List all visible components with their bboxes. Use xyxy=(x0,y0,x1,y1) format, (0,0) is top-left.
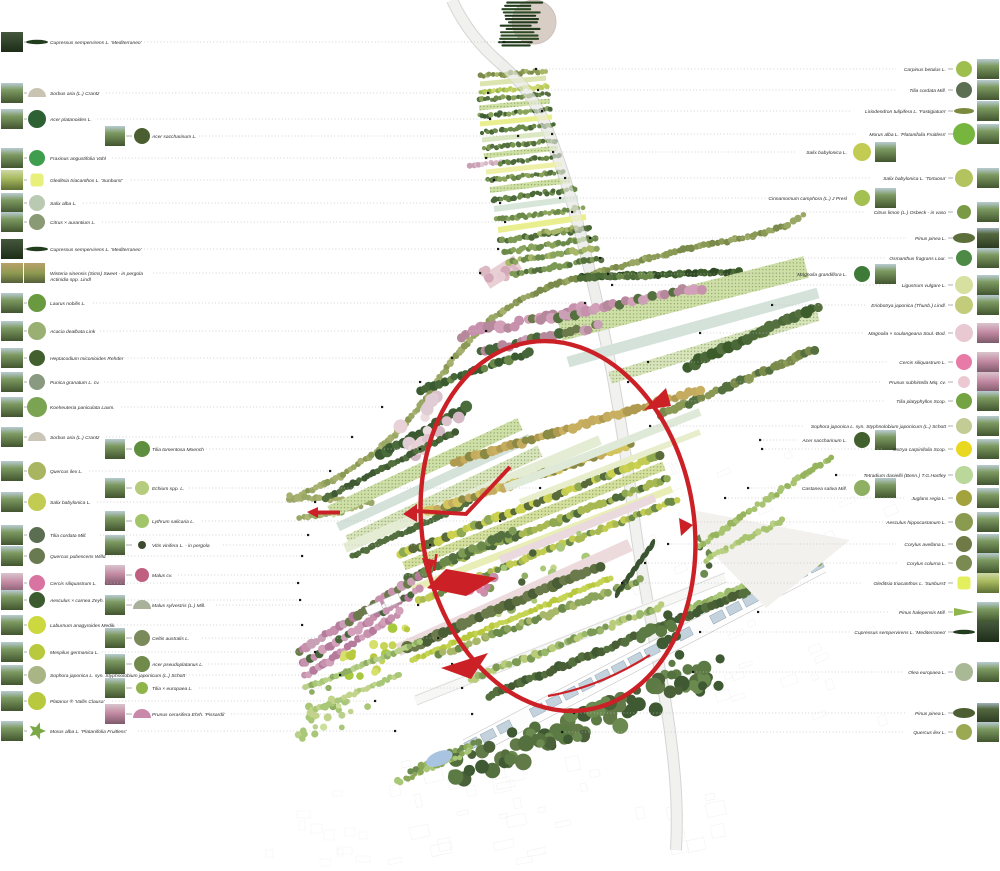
svg-text:Celtis australis L.: Celtis australis L. xyxy=(152,636,189,642)
svg-text:Pinus pinea L.: Pinus pinea L. xyxy=(915,236,946,242)
svg-text:Tilia cordata Mill.: Tilia cordata Mill. xyxy=(909,88,946,94)
svg-text:Mespilus germanica L.: Mespilus germanica L. xyxy=(50,650,99,656)
svg-text:Tetradium daniellii (Benn.) T: Tetradium daniellii (Benn.) T.G.Hartley xyxy=(863,473,946,479)
svg-text:Acer platanoides L.: Acer platanoides L. xyxy=(49,117,92,123)
svg-text:Echium spp. L.: Echium spp. L. xyxy=(152,486,184,492)
svg-text:Morus alba L. 'Platanifolia F: Morus alba L. 'Platanifolia Fruitless' xyxy=(50,729,128,735)
svg-text:Olea europaea L.: Olea europaea L. xyxy=(908,670,946,676)
svg-text:Salix alba L.: Salix alba L. xyxy=(50,201,77,207)
svg-text:Quercus ilex L.: Quercus ilex L. xyxy=(913,730,946,736)
svg-text:Lythrum salicaria L.: Lythrum salicaria L. xyxy=(152,519,194,525)
svg-text:Salix babylonica L. 'Tortuo: Salix babylonica L. 'Tortuosa' xyxy=(883,176,947,182)
svg-text:Malus cv.: Malus cv. xyxy=(152,573,172,579)
svg-text:Actinidia spp. Lindl: Actinidia spp. Lindl xyxy=(49,277,92,283)
svg-text:Quercus pubescens Willd.: Quercus pubescens Willd. xyxy=(50,554,107,560)
svg-text:Tilia platyphyllos Scop.: Tilia platyphyllos Scop. xyxy=(896,399,946,405)
svg-text:Acer saccharinum L.: Acer saccharinum L. xyxy=(151,134,197,140)
svg-text:Liriodendron tulipifera L. ': Liriodendron tulipifera L. 'Fastigiatum' xyxy=(865,109,947,115)
svg-text:Koelreuteria paniculata Laxm: Koelreuteria paniculata Laxm. xyxy=(50,405,115,411)
svg-text:Sophora japonica L. syn. Styp: Sophora japonica L. syn. Styphnolobium j… xyxy=(50,673,186,679)
svg-text:Corylus colurna L.: Corylus colurna L. xyxy=(907,561,946,567)
svg-text:Cercis siliquastrum L.: Cercis siliquastrum L. xyxy=(50,581,97,587)
svg-text:Malus sylvestris (L.) Mill.: Malus sylvestris (L.) Mill. xyxy=(152,603,205,609)
svg-text:Magnolia grandiflora L.: Magnolia grandiflora L. xyxy=(797,272,847,278)
svg-text:Punica granatum L. cv.: Punica granatum L. cv. xyxy=(50,380,100,386)
svg-text:Laburnum anagyroides Medik.: Laburnum anagyroides Medik. xyxy=(50,623,116,629)
svg-text:Citrus × aurantium L.: Citrus × aurantium L. xyxy=(50,220,96,226)
svg-text:Laurus nobilis L.: Laurus nobilis L. xyxy=(50,301,86,307)
svg-text:Sorbus aria (L.) Crantz: Sorbus aria (L.) Crantz xyxy=(50,91,100,97)
svg-text:Acer saccharinum L.: Acer saccharinum L. xyxy=(801,438,847,444)
svg-text:Citrus limon (L.) Osbeck - i: Citrus limon (L.) Osbeck - in vaso xyxy=(874,210,947,216)
svg-text:Cinnamomum camphora (L.) J P: Cinnamomum camphora (L.) J Presl xyxy=(768,196,847,202)
svg-text:Castanea sativa Mill.: Castanea sativa Mill. xyxy=(802,486,847,492)
svg-text:Sorbus aria (L.) Crantz: Sorbus aria (L.) Crantz xyxy=(50,435,100,441)
svg-text:Osmanthus fragrans Lour.: Osmanthus fragrans Lour. xyxy=(889,256,946,262)
svg-text:Tilia cordata Mill.: Tilia cordata Mill. xyxy=(50,533,87,539)
svg-text:Ligustrum vulgare L.: Ligustrum vulgare L. xyxy=(902,283,946,289)
svg-text:Cupressus sempervirens L. 'M: Cupressus sempervirens L. 'Mediterraneo' xyxy=(50,247,143,253)
svg-text:Fraxinus angustifolia Vahl: Fraxinus angustifolia Vahl xyxy=(50,156,107,162)
svg-text:Aesculus hippocastanum L.: Aesculus hippocastanum L. xyxy=(885,520,946,526)
svg-text:Wisteria sinensis (Sims) Swe: Wisteria sinensis (Sims) Sweet - in perg… xyxy=(50,271,143,277)
svg-text:Acacia dealbata Link: Acacia dealbata Link xyxy=(49,329,96,335)
svg-text:Carpinus betulus L.: Carpinus betulus L. xyxy=(904,67,946,73)
svg-text:Quercus ilex L.: Quercus ilex L. xyxy=(50,469,83,475)
svg-text:Cupressus sempervirens L. 'M: Cupressus sempervirens L. 'Mediterraneo' xyxy=(50,40,143,46)
svg-text:Vitis vinifera L. - in pergol: Vitis vinifera L. - in pergola xyxy=(152,543,210,549)
svg-text:Eriobotrya japonica (Thunb.) L: Eriobotrya japonica (Thunb.) Lindl. xyxy=(871,303,946,309)
svg-text:Cercis siliquastrum L.: Cercis siliquastrum L. xyxy=(899,360,946,366)
svg-text:Tilia tomentosa Moench: Tilia tomentosa Moench xyxy=(152,447,204,453)
svg-text:Prunus subhirtella Miq. cv.: Prunus subhirtella Miq. cv. xyxy=(889,380,946,386)
svg-text:Sophora japonica L. syn. Sty: Sophora japonica L. syn. Styphnolobium j… xyxy=(811,424,947,430)
svg-text:Salix babylonica L.: Salix babylonica L. xyxy=(50,500,91,506)
svg-text:Gleditsia triacanthos L. 'Su: Gleditsia triacanthos L. 'Sunburst' xyxy=(873,581,947,587)
svg-text:Magnolia × soulangeana Sou: Magnolia × soulangeana Soul.-Bod. xyxy=(868,331,946,337)
svg-text:Salix babylonica L.: Salix babylonica L. xyxy=(806,150,847,156)
svg-text:Cupressus sempervirens L. ': Cupressus sempervirens L. 'Mediterraneo' xyxy=(854,630,947,636)
svg-text:Aesculus × carnea Zeyh.: Aesculus × carnea Zeyh. xyxy=(49,598,104,604)
svg-text:Ostrya carpinifolia Scop.: Ostrya carpinifolia Scop. xyxy=(893,447,946,453)
svg-text:Tilia × europaea L.: Tilia × europaea L. xyxy=(152,686,193,692)
svg-text:Pinus pinea L.: Pinus pinea L. xyxy=(915,711,946,717)
svg-text:Prunus cerasifera Ehrh. 'Pissa: Prunus cerasifera Ehrh. 'Pissardii' xyxy=(152,712,226,718)
svg-text:Juglans regia L.: Juglans regia L. xyxy=(910,496,946,502)
svg-text:Acer pseudoplatanus L.: Acer pseudoplatanus L. xyxy=(151,662,203,668)
svg-text:Heptacodium miconioides Rehde: Heptacodium miconioides Rehder xyxy=(50,356,124,362)
svg-text:Platanor ® 'Vallis Clausa': Platanor ® 'Vallis Clausa' xyxy=(50,698,106,705)
svg-text:Gleditsia triacanthos L. 'Sun: Gleditsia triacanthos L. 'Sunburst' xyxy=(50,178,124,184)
svg-text:Corylus avellana L.: Corylus avellana L. xyxy=(904,542,946,548)
svg-text:Pinus halepensis Mill.: Pinus halepensis Mill. xyxy=(899,610,946,616)
svg-text:Morus alba L. 'Platanifolia: Morus alba L. 'Platanifolia Fruitless' xyxy=(869,132,947,138)
